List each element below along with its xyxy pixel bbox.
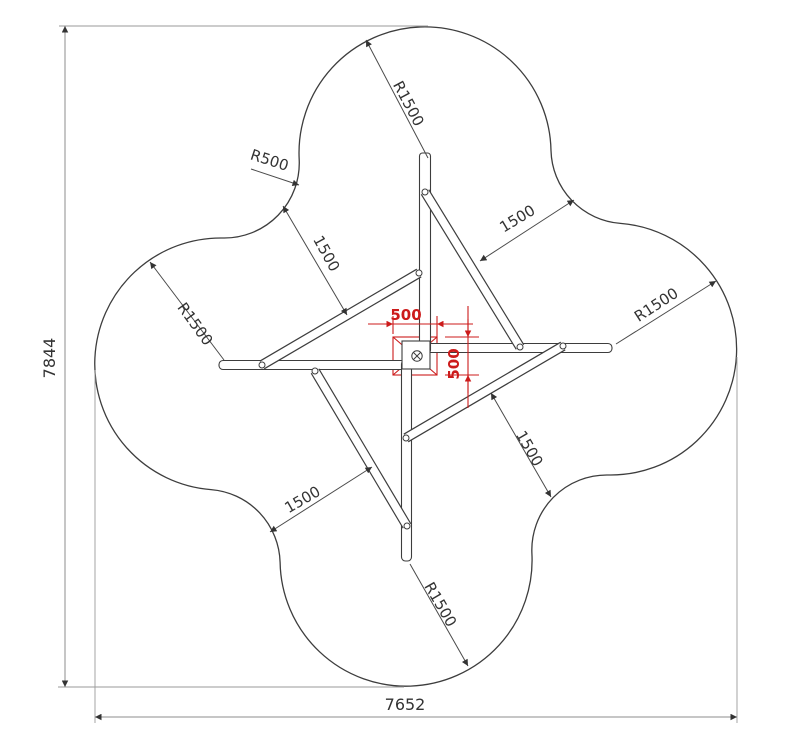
drawing-canvas: 7844 7652 R500 R1500 R1500 R1500 R1500 1…: [0, 0, 800, 740]
dimension-clearance-bottom-right: 1500: [491, 393, 551, 497]
joint-hole: [259, 362, 265, 368]
joint-hole: [560, 343, 566, 349]
height-dimension-label: 7844: [40, 338, 59, 379]
technical-drawing: 7844 7652 R500 R1500 R1500 R1500 R1500 1…: [0, 0, 800, 740]
dimension-overall-width: 7652: [95, 357, 737, 723]
center-pivot: [402, 341, 430, 369]
joint-hole: [416, 270, 422, 276]
clearance-label-ne: 1500: [496, 201, 538, 236]
leader-lobe-left: R1500: [150, 262, 224, 360]
clearance-label-nw: 1500: [309, 233, 343, 275]
r1500-right-label: R1500: [631, 284, 682, 326]
width-dimension-label: 7652: [385, 695, 426, 714]
beam-south: [402, 360, 412, 561]
r1500-left-label: R1500: [173, 299, 216, 349]
dimension-clearance-bottom-left: 1500: [270, 467, 372, 532]
joint-hole: [517, 344, 523, 350]
joint-hole: [422, 189, 428, 195]
leader-lobe-bottom: R1500: [410, 564, 468, 666]
r1500-bottom-label: R1500: [420, 579, 460, 630]
r1500-top-label: R1500: [389, 78, 428, 129]
clearance-label-se: 1500: [512, 427, 547, 469]
leader-fillet-radius: R500: [248, 146, 299, 185]
leader-lobe-top: R1500: [366, 40, 428, 158]
dimension-clearance-top-right: 1500: [480, 200, 574, 261]
structure: [219, 153, 612, 561]
brace-west-south: [315, 371, 407, 526]
joint-hole: [312, 368, 318, 374]
joint-hole: [403, 435, 409, 441]
leader-lobe-right: R1500: [616, 281, 716, 344]
hub-width-label: 500: [390, 306, 421, 324]
hub-height-label: 500: [445, 348, 463, 379]
dimension-overall-height: 7844: [40, 26, 428, 687]
joint-hole: [404, 523, 410, 529]
dimension-clearance-top-left: 1500: [283, 206, 347, 315]
